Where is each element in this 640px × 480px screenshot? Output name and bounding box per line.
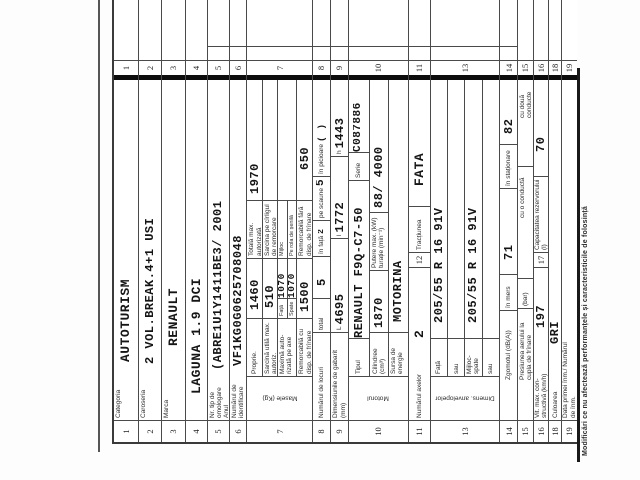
row-number: 7 [247,420,312,442]
field-label: în mers [500,274,517,310]
row-number: 2 [139,420,161,442]
field-label: pe scaune [317,186,326,220]
vehicle-data-table: 1 Categoria AUTOTURISM 1 2 Caroseria 2 V… [112,0,577,444]
table-row-noise: 14 Zgomotul (dB(A)) în mers 71 în stațio… [500,0,518,442]
field-value: 5 [316,278,328,298]
field-label: Data primei înm./ Numărul de înm. [562,340,577,420]
right-page-cell [349,0,408,60]
row-number: 13 [431,60,500,75]
field-label: Pe rola de șenilă [288,213,297,258]
table-row-speed-tank: 16 Vit. max. con- structivă (km/h) 197 1… [534,0,549,442]
row-number: 18 [549,420,561,442]
right-page-cell [186,0,207,60]
field-value: 71 [503,245,515,274]
field-value: 1772 [334,202,346,233]
field-label: sau [483,338,500,376]
field-label: Față [278,298,287,318]
civ-page: UI 535200 > 1 Categoria AUTOTURISM 1 2 C… [0,0,640,480]
field-label: în staționare [500,144,517,188]
page-top-edge [98,0,100,452]
field-label: Nr. tip de omologare Anul fabricației [208,374,229,420]
field-value: 1870 [373,297,385,332]
row-number: 3 [162,420,185,442]
right-page-cell [431,0,500,60]
field-label: Caroseria [139,374,161,420]
row-number: 8 [313,420,330,442]
field-value: 1500 [299,281,311,318]
field-label: Sarcina pe cîrligul de remorcare [263,200,277,258]
field-value: 1460 [249,279,261,318]
right-page-cell [562,0,577,60]
row-number: 5 [208,420,229,442]
field-value: 1070 [288,273,297,298]
table-row-air-pressure: 15 Presiunea aerului la cupla de frînare… [518,0,534,442]
field-label: Presiunea aerului la cupla de frînare [518,308,533,420]
right-page-cell [549,0,561,60]
table-row: 3 Marca RENAULT 3 [162,0,186,442]
row-number: 1 [114,60,138,75]
row-number: 16 [534,60,548,75]
row-number: 1 [114,420,138,442]
field-label: l [335,233,344,238]
row-number: 11 [409,420,430,442]
field-label: L [335,324,344,332]
thick-divider [114,75,138,80]
row-number: 14 [500,60,517,75]
row-number: 9 [331,60,348,75]
right-page-cell [331,0,348,60]
field-value: RENAULT [167,288,180,374]
field-label: cu două conducte [518,80,533,166]
field-label: Dimensiunile de gabarit (mm) [331,332,348,420]
field-value: 205/55 R 16 91V [433,207,445,338]
row-number: 15 [518,420,533,442]
field-label: Capacitatea rezervorului (l) [534,176,548,252]
right-page-cell [409,0,430,60]
row-number: 7 [247,60,312,75]
table-row: 6 Numărul de identificare VF1KG0G0625708… [230,0,248,442]
field-value: 197 [535,305,547,360]
page-bottom-edge [577,68,580,462]
vertical-label: Dimens. anvelopelor [431,376,500,420]
table-row-axles-traction: 11 Numărul axelor 2 12 Tracțiunea FATA 1… [409,0,431,442]
field-label: Numărul axelor [409,368,430,420]
row-number: 19 [562,60,577,75]
field-label: Serie [349,152,369,180]
field-label: Remorcabilă fără disp. de frînare [297,200,312,258]
field-label: Remorcabilă cu disp. de frînare [297,318,312,376]
field-label: Sarcină utilă max. autoriz. [263,318,277,376]
field-value: 5 [316,179,327,186]
right-page-cell [500,0,517,60]
field-value: 510 [264,285,276,318]
row-number: 6 [230,60,247,75]
field-label: Numărul de identificare [230,374,247,420]
right-page-cell [230,0,247,60]
row-number: 19 [562,420,577,442]
vertical-label: Masele (Kg) [247,376,312,420]
table-row: 4 LAGUNA 1.9 DCI 4 [186,0,208,442]
field-label: Mijloc- spate [465,338,482,376]
row-number: 8 [313,60,330,75]
field-label: Față [431,338,448,376]
row-number: 6 [230,420,247,442]
field-label: Categoria [114,374,138,420]
table-row-tires: 13 Dimens. anvelopelor Față 205/55 R 16 … [431,0,501,442]
field-label: Maximă auto- rizată pe axe [278,318,297,376]
row-number: 9 [331,420,348,442]
row-number: 16 [534,420,548,442]
right-page-cell [247,0,312,60]
row-number: 14 [500,420,517,442]
table-row: 2 Caroseria 2 VOL.BREAK.4+1 USI 2 [139,0,162,442]
field-value: 1070 [278,273,287,298]
field-label: total [313,298,330,332]
row-number: 15 [518,60,533,75]
field-value: 82 [503,119,515,144]
field-value: MOTORINA [392,260,404,332]
field-label: Cilindree (cm³) [370,332,389,376]
table-row: 1 Categoria AUTOTURISM 1 [114,0,139,442]
field-value: 70 [535,137,547,176]
right-page-cell [162,0,185,60]
field-value: AUTOTURISM [119,279,132,374]
field-label: cu o conductă [518,166,533,278]
field-value: FATA [413,153,426,206]
field-label: Tracțiunea [409,206,430,252]
field-value: ( ) [317,123,327,142]
row-number: 10 [349,60,408,75]
field-value: 1970 [249,163,261,200]
field-label: Culoarea [549,374,561,420]
row-number: 10 [349,420,408,442]
right-page-cell [518,0,533,60]
field-label: în picioare [317,142,326,176]
field-label: Proprie. [247,318,262,376]
field-value: RENAULT F9Q-C7-50 [353,207,365,338]
field-label: Vit. max. con- structivă (km/h) [534,360,548,420]
field-value: VF1KG0G0625708048 [232,235,244,374]
row-number: 13 [431,420,500,442]
field-value: 205/55 R 16 91V [467,207,479,338]
table-row-engine: 10 Motorul Tipul RENAULT F9Q-C7-50 Serie… [349,0,409,442]
field-label: Zgomotul (dB(A)) [500,310,517,420]
vertical-label: Motorul [349,376,408,420]
table-row-color: 18 Culoarea GRI 18 [549,0,562,442]
field-label: Masele (Kg) [262,395,297,402]
right-page-cell [139,0,161,60]
table-row-dimensions: 9 Dimensiunile de gabarit (mm) L4695 l17… [331,0,349,442]
table-row-seats: 8 Numărul de locuri total 5 în față2 pe … [313,0,331,442]
right-page-cell [313,0,330,60]
row-number: 11 [409,60,430,75]
field-value: GRI [549,321,561,374]
row-number: 17 [534,252,548,268]
field-label: Sursa de energie [389,332,408,376]
field-label: Marca [162,374,185,420]
field-label: în față [317,234,326,256]
field-value: 88/ 4000 [373,146,385,212]
field-label: Dimens. anvelopelor [435,395,494,402]
field-value: 650 [299,147,311,200]
field-value: 4695 [334,294,346,325]
field-label: Tipul [349,338,369,376]
right-page-cell [114,0,138,60]
row-number: 12 [409,252,430,268]
row-number: 3 [162,60,185,75]
table-row-masses: 7 Masele (Kg) Proprie. 1460 Totală max. … [247,0,313,442]
field-value: C087886 [353,102,364,152]
row-number: 2 [139,60,161,75]
scanned-vehicle-id-card: UI 535200 > 1 Categoria AUTOTURISM 1 2 C… [0,0,640,480]
row-number: 5 [208,60,229,75]
field-label: (bar) [518,278,533,308]
row-number: 4 [186,60,207,75]
table-row-first-registration: 19 Data primei înm./ Numărul de înm. 19 [562,0,577,442]
field-value: 1443 [334,118,346,149]
field-label: h [335,148,344,156]
field-value: 2 [318,229,326,234]
table-row: 5 Nr. tip de omologare Anul fabricației … [208,0,230,442]
field-value: 2 VOL.BREAK.4+1 USI [144,218,156,374]
field-label: Mijloc [278,240,287,258]
field-label: Spate [288,298,297,318]
field-value: 2 [413,330,426,368]
field-value: LAGUNA 1.9 DCI [190,278,203,420]
field-label: Putere max. (kW) turație (min⁻¹) [370,212,389,270]
footer-note: Modificări ce nu afectează performanțele… [582,136,590,456]
right-page-cell [534,0,548,60]
field-label: Motorul [367,395,389,402]
field-value: (ABRE1U1Y1411BE3/ 2001 [212,201,224,374]
field-label: sau [448,338,464,376]
row-number: 4 [186,420,207,442]
field-label: Numărul de locuri [313,332,330,420]
right-page-cell [208,0,229,60]
row-number: 18 [549,60,561,75]
field-label: Totală max. autorizată [247,200,262,258]
